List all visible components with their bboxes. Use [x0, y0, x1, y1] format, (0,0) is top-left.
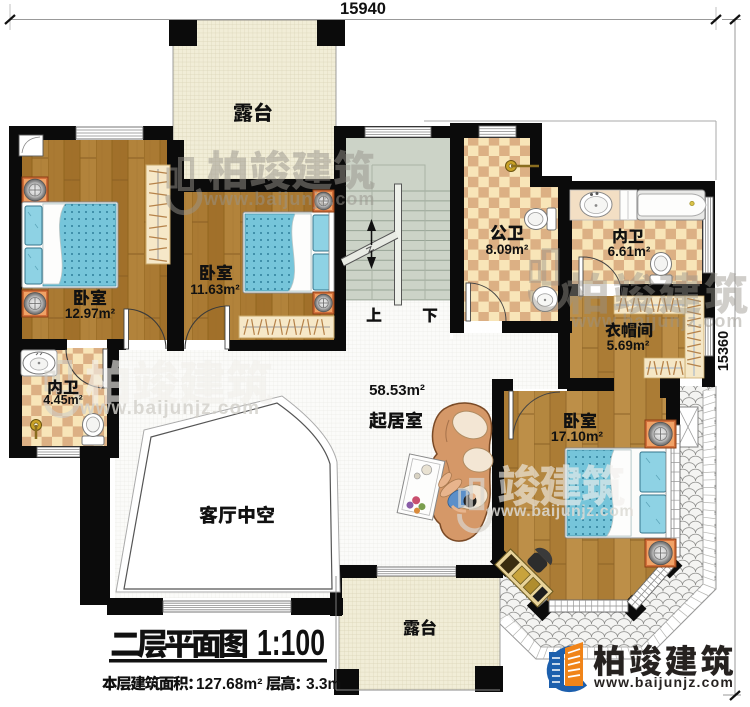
- svg-text:127.68m²: 127.68m²: [196, 676, 262, 693]
- svg-text:12.97m²: 12.97m²: [65, 306, 116, 321]
- svg-text:6.61m²: 6.61m²: [608, 244, 651, 259]
- svg-text:www.baijunjz.com: www.baijunjz.com: [593, 674, 734, 690]
- svg-text:15940: 15940: [340, 0, 386, 18]
- svg-text:11.63m²: 11.63m²: [190, 282, 240, 297]
- svg-text:17.10m²: 17.10m²: [551, 428, 603, 444]
- svg-text:1:100: 1:100: [257, 622, 325, 663]
- svg-text:www.baijunjz.com: www.baijunjz.com: [79, 398, 260, 419]
- svg-text:4.45m²: 4.45m²: [43, 393, 83, 407]
- svg-text:www.baijunjz.com: www.baijunjz.com: [487, 503, 634, 520]
- svg-text:5.69m²: 5.69m²: [607, 338, 650, 353]
- svg-text:www.baijunjz.com: www.baijunjz.com: [571, 311, 743, 331]
- svg-text:15360: 15360: [716, 331, 732, 371]
- svg-text:3.3m: 3.3m: [306, 676, 341, 693]
- svg-text:8.09m²: 8.09m²: [486, 242, 529, 257]
- svg-text:58.53m²: 58.53m²: [369, 382, 425, 399]
- svg-text:www.baijunjz.com: www.baijunjz.com: [203, 189, 375, 209]
